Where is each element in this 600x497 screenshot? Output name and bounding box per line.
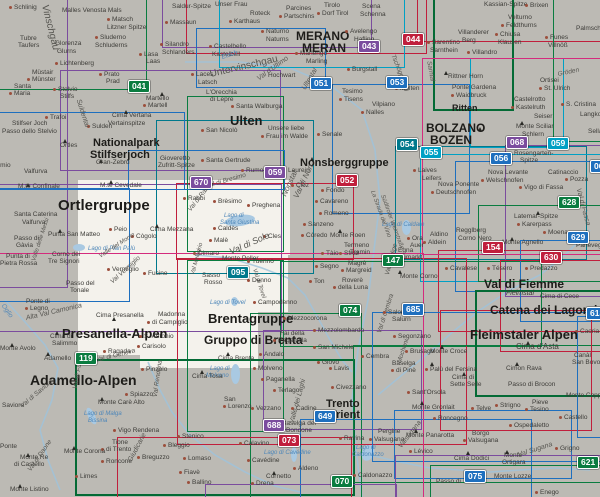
map-label: Senale [322, 132, 342, 139]
map-label: Kassian-Spitze [484, 2, 527, 9]
town-dot [319, 212, 322, 215]
map-label: Zufritt-Spitze [158, 163, 195, 170]
sheet-badge-059[interactable]: 059 [547, 137, 569, 150]
town-dot [223, 405, 226, 408]
town-dot [321, 189, 324, 192]
map-label: Passo di [436, 479, 461, 486]
town-dot [163, 444, 166, 447]
map-label: Cògolo [136, 234, 157, 241]
map-label: Seiser [534, 114, 552, 121]
town-dot [201, 129, 204, 132]
map-label: Castelbello [214, 44, 246, 51]
town-dot [187, 481, 190, 484]
town-dot [559, 416, 562, 419]
map-label: Latsch [198, 80, 217, 87]
map-label: Bleggio [168, 443, 190, 450]
sheet-badge-688[interactable]: 688 [263, 419, 285, 432]
map-label: Marling [306, 59, 327, 66]
map-label: Cima Brenta [218, 356, 254, 363]
town-dot [539, 87, 542, 90]
map-label: Aldein [428, 240, 446, 247]
town-dot [495, 33, 498, 36]
map-label: Rumo [246, 168, 263, 175]
map-label: Tuenno [252, 259, 274, 266]
map-label: Berg [462, 38, 476, 45]
map-label: Telve [476, 406, 491, 413]
town-dot [431, 191, 434, 194]
map-label: Tàio [326, 251, 339, 258]
map-label: Monte Avolo [0, 346, 36, 353]
town-dot [317, 12, 320, 15]
town-dot [25, 307, 28, 310]
map-label: Monte Sciliar [516, 124, 554, 131]
map-label: Kastelruth [516, 105, 545, 112]
sheet-badge-628[interactable]: 628 [558, 196, 580, 209]
town-dot [353, 474, 356, 477]
map-label: Breguzzo [142, 455, 169, 462]
lake [73, 244, 85, 251]
map-label: Drena [256, 481, 274, 488]
map-label: Lago di Tovel [210, 300, 245, 306]
map-label: Maria [14, 91, 30, 98]
map-label: Molveno [258, 366, 283, 373]
sheet-badge-070[interactable]: 070 [331, 475, 353, 488]
map-label: Lago di Cavédine [264, 450, 311, 456]
map-label: Sfruz [344, 251, 359, 258]
town-dot [283, 317, 286, 320]
sheet-badge-059[interactable]: 059 [264, 166, 286, 179]
town-dot [147, 321, 150, 324]
map-label: Santa Gertrude [206, 158, 250, 165]
map-label: Ortigara [502, 460, 525, 467]
town-dot [259, 353, 262, 356]
map-label: di Lepre [210, 97, 234, 104]
sheet-badge-685[interactable]: 685 [402, 303, 424, 316]
town-dot [517, 223, 520, 226]
map-label: Calavino [244, 441, 269, 448]
map-label: Fucine [148, 271, 168, 278]
map-label: San Michele [318, 345, 354, 352]
map-label: Cavédine [252, 458, 279, 465]
town-dot [53, 88, 56, 91]
town-dot [139, 335, 142, 338]
town-dot [487, 267, 490, 270]
map-label: Fleimstal [506, 290, 534, 297]
sheet-badge-670[interactable]: 670 [190, 176, 212, 189]
map-label: Castello [564, 415, 587, 422]
map-label: Lago di [224, 213, 244, 219]
map-label: Romeno [324, 211, 349, 218]
map-label: Lago di [210, 366, 230, 372]
map-label: Dorf Tirol [322, 11, 348, 18]
town-dot [9, 92, 12, 95]
map-label: Tonale [70, 288, 89, 295]
town-dot [467, 51, 470, 54]
map-label: Laas [146, 59, 160, 66]
map-label: Monte Roen [330, 233, 365, 240]
sheet-badge-154[interactable]: 154 [482, 241, 504, 254]
map-label: Caoria [580, 329, 599, 336]
sheet-badge-649[interactable]: 649 [314, 410, 336, 423]
town-dot [273, 339, 276, 342]
town-dot [251, 482, 254, 485]
map-label: Lavis [334, 366, 349, 373]
map-label: Cimon Rava [506, 366, 542, 373]
map-label: Lichtenberg [60, 61, 94, 68]
town-dot [339, 437, 342, 440]
town-dot [543, 231, 546, 234]
map-label: Sluderno [100, 35, 126, 42]
town-dot [425, 368, 428, 371]
town-dot [481, 179, 484, 182]
town-dot [261, 30, 264, 33]
map-label: San Nicolò [206, 128, 237, 135]
town-dot [407, 391, 410, 394]
town-dot [273, 389, 276, 392]
map-label: Tisens [344, 97, 363, 104]
sheet-badge-043[interactable]: 043 [358, 40, 380, 53]
sheet-badge-06[interactable]: 06 [590, 160, 600, 173]
sheet-badge-052[interactable]: 052 [336, 174, 358, 187]
town-dot [95, 36, 98, 39]
town-dot [341, 269, 344, 272]
map-label: Valsugana [468, 438, 498, 445]
map-label: Cima Presanella [96, 313, 144, 320]
sheet-badge-041[interactable]: 041 [128, 80, 150, 93]
map-label: Enego [540, 490, 559, 497]
map-label: Tesino [530, 407, 549, 414]
map-label: Salurn [392, 317, 411, 324]
town-dot [209, 45, 212, 48]
town-dot [309, 280, 312, 283]
map-label: Ponte [0, 444, 17, 451]
map-label: BOZEN [430, 134, 472, 146]
town-dot [525, 4, 528, 7]
map-label: Deutschnofen [436, 190, 476, 197]
map-label: Paganella [266, 377, 295, 384]
map-label: Punta San Matteo [48, 232, 100, 239]
map-label: Lomaso [188, 456, 211, 463]
map-label: Ortlergruppe [58, 198, 150, 213]
map-label: Palmschoß [576, 26, 600, 33]
town-dot [345, 30, 348, 33]
map-label: Naturno [266, 29, 289, 36]
map-label: Naturns [266, 37, 289, 44]
map-label: Civezzano [336, 385, 366, 392]
map-label: Regglberg [456, 228, 486, 235]
map-label: Strigno [500, 403, 521, 410]
map-canvas[interactable]: SchlinigMalles Venosta MalsMatschLitzner… [0, 0, 600, 497]
map-label: Andalo [264, 352, 284, 359]
town-dot [295, 52, 298, 55]
sheet-badge-075[interactable]: 075 [464, 470, 486, 483]
sheet-badge-629[interactable]: 629 [567, 231, 589, 244]
map-label: M.te Confinale [18, 184, 60, 191]
map-label: di Campiglio [152, 320, 188, 327]
town-dot [463, 439, 466, 442]
map-label: Bissina [88, 418, 107, 424]
sheet-badge-073[interactable]: 073 [278, 434, 300, 447]
sheet-badge-119[interactable]: 119 [75, 352, 97, 365]
map-label: Sette Selle [450, 382, 481, 389]
map-label: Monte Listino [10, 487, 49, 494]
town-dot [313, 329, 316, 332]
map-label: Glurns [57, 49, 76, 56]
map-label: Martell [148, 103, 168, 110]
town-dot [317, 133, 320, 136]
map-label: Predazzo [530, 266, 557, 273]
map-label: Gàvia [16, 243, 33, 250]
map-label: S. Antonio [144, 334, 174, 341]
map-label: Schenna [360, 12, 386, 19]
map-label: Waidbruck [456, 93, 486, 100]
map-label: Tesimo [342, 89, 363, 96]
map-label: Karthaus [234, 19, 260, 26]
map-label: Cavareno [320, 199, 348, 206]
map-label: Schlanders [162, 50, 195, 57]
town-dot [331, 386, 334, 389]
town-dot [471, 407, 474, 410]
town-dot [107, 18, 110, 21]
town-dot [347, 68, 350, 71]
map-label: Ballino [192, 480, 212, 487]
town-dot [9, 6, 12, 9]
map-label: Sulden [92, 124, 112, 131]
map-label: Chiusa [500, 32, 520, 39]
map-label: Velturno [508, 15, 532, 22]
map-label: Cima Vertana [112, 113, 151, 120]
town-dot [519, 186, 522, 189]
map-label: Pergine [378, 429, 400, 436]
town-dot [409, 450, 412, 453]
map-label: Burgstall [352, 67, 377, 74]
town-dot [137, 345, 140, 348]
town-dot [141, 368, 144, 371]
town-dot [303, 223, 306, 226]
map-label: Lago di Malga [84, 411, 122, 417]
map-label: S. Cristina [566, 102, 596, 109]
map-label: Schlinig [14, 5, 37, 12]
map-label: Funes [550, 35, 568, 42]
map-label: Palù del Fersina [430, 367, 477, 374]
town-dot [103, 350, 106, 353]
town-dot [501, 24, 504, 27]
map-label: Taufers [18, 43, 39, 50]
map-label: Welschnofen [486, 178, 523, 185]
town-dot [253, 301, 256, 304]
map-label: Nationalpark [93, 138, 160, 149]
map-label: Scena [362, 4, 380, 11]
sheet-badge-621[interactable]: 621 [577, 456, 599, 469]
map-label: Malè [214, 238, 228, 245]
map-label: San Bovo [572, 360, 600, 367]
map-label: Mezzolombardo [318, 328, 364, 335]
map-label: Cavalese [450, 266, 477, 273]
map-label: Adamello [44, 356, 71, 363]
map-label: di Trento [106, 447, 131, 454]
map-label: Vertainspitze [108, 121, 145, 128]
town-dot [383, 311, 386, 314]
map-label: Ospedaletto [514, 423, 549, 430]
map-label: Villanderer [458, 30, 489, 37]
town-dot [107, 268, 110, 271]
map-label: Fondo [326, 188, 344, 195]
map-label: Tésero [492, 266, 512, 273]
map-label: Avelengo [350, 29, 377, 36]
map-label: Unsere liebe [268, 126, 305, 133]
map-label: Carisolo [142, 344, 166, 351]
town-dot [99, 73, 102, 76]
map-label: Klausen [498, 40, 522, 47]
town-dot [391, 369, 394, 372]
map-label: Tirolo [324, 3, 340, 10]
map-label: Latemar-Spitze [514, 214, 558, 221]
town-dot [261, 135, 264, 138]
map-label: Unser Frau [215, 2, 248, 9]
town-dot [125, 393, 128, 396]
sheet-badge-618[interactable]: 618 [586, 307, 600, 320]
map-label: Feldthurns [506, 23, 537, 30]
map-label: Madonna [158, 312, 185, 319]
lake [231, 364, 240, 384]
town-dot [427, 41, 430, 44]
map-label: Caldonazzo [358, 473, 392, 480]
town-dot [143, 104, 146, 107]
map-label: Stilfs [60, 94, 74, 101]
map-label: Spiazzo [130, 392, 153, 399]
map-label: Roteck [250, 11, 270, 18]
map-label: Aldino [430, 232, 448, 239]
map-label: Nalles [366, 110, 384, 117]
town-dot [113, 429, 116, 432]
map-label: Prad [106, 79, 120, 86]
map-label: Matsch [112, 17, 133, 24]
town-dot [511, 106, 514, 109]
map-label: Campodenno [258, 300, 297, 307]
town-dot [209, 239, 212, 242]
map-label: Paganella [278, 338, 307, 345]
map-label: Vilpiano [372, 102, 395, 109]
town-dot [160, 43, 163, 46]
sheet-badge-068[interactable]: 068 [506, 136, 528, 149]
map-label: Lago di [356, 445, 376, 451]
town-dot [261, 378, 264, 381]
town-dot [247, 279, 250, 282]
map-label: di Pinè [396, 368, 416, 375]
map-label: Ritten [452, 104, 478, 113]
town-dot [339, 252, 342, 255]
map-label: Rittner Horn [448, 74, 483, 81]
town-dot [213, 227, 216, 230]
town-dot [509, 424, 512, 427]
sheet-badge-095[interactable]: 095 [227, 266, 249, 279]
sheet-badge-074[interactable]: 074 [339, 304, 361, 317]
town-dot [407, 237, 410, 240]
map-label: Fleimstaler Alpen [470, 328, 578, 341]
map-label: Hochwart [268, 73, 295, 80]
map-label: Karerpass [522, 222, 552, 229]
town-dot [525, 267, 528, 270]
town-dot [495, 404, 498, 407]
town-dot [137, 456, 140, 459]
town-dot [247, 459, 250, 462]
map-label: Monte Lozze [494, 474, 531, 481]
map-label: Pietra Rossa [0, 261, 37, 268]
town-dot [339, 98, 342, 101]
town-dot [393, 335, 396, 338]
map-label: Villnöß [548, 43, 568, 50]
map-label: Monte Gronlait [412, 405, 455, 412]
town-dot [109, 228, 112, 231]
sheet-badge-044[interactable]: 044 [402, 33, 424, 46]
map-label: Vigo di Fassa [524, 185, 563, 192]
map-label: Limes [80, 474, 97, 481]
map-label: Vezzano [256, 406, 281, 413]
sheet-badge-054[interactable]: 054 [396, 138, 418, 151]
map-label: Monte Carè Alto [98, 400, 145, 407]
map-label: Grigno [560, 446, 580, 453]
map-label: Caldonazzo [352, 452, 384, 458]
sheet-badge-051[interactable]: 051 [310, 77, 332, 90]
town-dot [413, 169, 416, 172]
map-label: Mezzocorona [288, 316, 327, 323]
map-label: Santa Caterina [14, 212, 57, 219]
sheet-badge-147[interactable]: 147 [382, 254, 404, 267]
map-label: Passo dello Stelvio [2, 129, 57, 136]
town-dot [229, 20, 232, 23]
map-label: Tre Signori [48, 259, 80, 266]
map-label: Stenico [182, 434, 204, 441]
map-label: Lévico [414, 449, 433, 456]
map-label: Ulten [230, 114, 263, 127]
map-label: Monte Croce [430, 349, 467, 356]
map-label: Brentagruppe [208, 312, 293, 325]
map-label: Villandro [472, 50, 497, 57]
town-dot [239, 442, 242, 445]
town-dot [555, 447, 558, 450]
map-label: Moena [548, 230, 568, 237]
map-label: Spitze [520, 158, 538, 165]
map-label: Cembra [366, 354, 389, 361]
map-label: Catena dei Lagorai [490, 304, 597, 316]
map-label: Còredo [306, 233, 327, 240]
sheet-badge-055[interactable]: 055 [420, 146, 442, 159]
map-label: Monte Coppolo [566, 393, 600, 400]
town-dot [433, 417, 436, 420]
map-label: Fiavè [184, 470, 200, 477]
town-dot [213, 200, 216, 203]
map-label: Caldès [218, 226, 238, 233]
sheet-badge-630[interactable]: 630 [540, 251, 562, 264]
sheet-badge-053[interactable]: 053 [386, 76, 408, 89]
town-dot [139, 53, 142, 56]
map-label: Monte Agnello [502, 240, 543, 247]
town-dot [313, 346, 316, 349]
sheet-badge-056[interactable]: 056 [490, 152, 512, 165]
map-label: Segno [320, 264, 339, 271]
town-dot [565, 178, 568, 181]
town-dot [183, 197, 186, 200]
map-label: Schluderns [95, 43, 128, 50]
map-label: Passo di Brocon [508, 382, 555, 389]
town-dot [231, 105, 234, 108]
map-label: Bormio [0, 163, 11, 170]
town-dot [101, 460, 104, 463]
map-label: Cima Dodici [454, 456, 489, 463]
map-label: Preghena [252, 203, 280, 210]
map-label: Sarnthein [430, 48, 458, 55]
map-label: Stilfser Joch [12, 121, 47, 128]
